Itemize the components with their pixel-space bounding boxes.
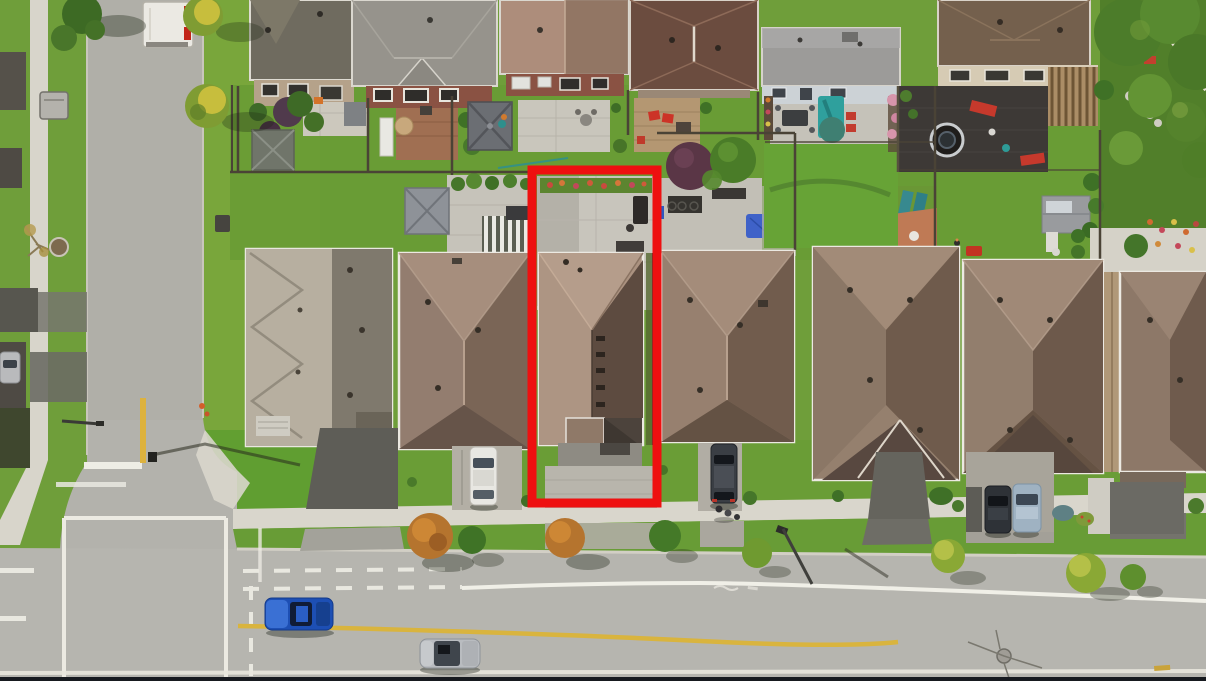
utility-trailer (40, 92, 68, 119)
dark-deck-table (676, 122, 691, 133)
grove-tree-8 (1124, 234, 1148, 258)
subject-roof-vent-3 (596, 368, 605, 373)
far-garden-flower-2 (1159, 227, 1165, 233)
flower-2 (559, 180, 565, 186)
t6-planter-2 (908, 109, 918, 119)
t5-window-2 (772, 88, 786, 98)
white-car-rear-window (473, 490, 494, 499)
grove-highlight-1 (1130, 20, 1150, 40)
red-patio-chair-2 (846, 124, 856, 132)
lawn-shrub-house-2 (407, 477, 417, 487)
grove-highlight-2 (1172, 102, 1188, 118)
pedestrian-2 (725, 510, 732, 517)
red-pot (637, 136, 645, 144)
stop-bar (84, 462, 142, 469)
gazebo-finial (487, 123, 493, 129)
dark-suv-roof (714, 466, 734, 488)
t5-vent-2 (858, 42, 863, 47)
house-7-vent-1 (1147, 317, 1153, 323)
house-2-vent-2 (475, 327, 481, 333)
hedge-bush-2 (466, 173, 482, 189)
subject-roof-vent-1 (596, 336, 605, 341)
corner-house-vent-1 (347, 267, 353, 273)
corner-house-driveway (306, 428, 398, 509)
patio-umbrella (395, 117, 413, 135)
subject-roof-vent-4 (596, 385, 605, 390)
light-blue-car-glass (1016, 494, 1038, 505)
bush-red-flower-1 (1081, 516, 1084, 519)
far-garden-flower-1 (1147, 219, 1153, 225)
t6-vent-2 (1057, 27, 1063, 33)
autumn-tree-2-crown (549, 521, 571, 543)
subject-front-step (600, 443, 630, 455)
yellow-bush-blvd-2-crown (1069, 555, 1091, 577)
top-house-3-skylight-1 (512, 77, 530, 89)
blue-road-car-hood (266, 600, 288, 628)
subject-roof-vent-top-2 (578, 268, 583, 273)
t5-chair-1 (775, 105, 781, 111)
hedge-bush-1 (451, 177, 465, 191)
dark-suv-rear-window (714, 492, 734, 500)
dark-suv-taillight-1 (712, 499, 717, 502)
corner-house-vent-2 (359, 327, 365, 333)
pedestrian-1 (716, 506, 723, 513)
pad-hedge-2 (1071, 245, 1085, 259)
t3-planter (611, 103, 621, 113)
top-house-2-vent (427, 17, 433, 23)
yellow-bush-blvd-1-shadow (950, 571, 986, 585)
top-house-6-roof (938, 0, 1090, 66)
red-lawnmower (966, 246, 982, 256)
small-tree-over-eave (702, 170, 722, 190)
green-tree-blvd-2-shadow (666, 549, 698, 563)
green-tree-blvd-2 (649, 520, 681, 552)
front-bush-3 (743, 491, 757, 505)
left-dark-driveway (0, 288, 38, 332)
house-5-vent-4 (917, 427, 923, 433)
far-garden-flower-8 (1189, 247, 1195, 253)
tree-topleft-3 (85, 20, 105, 40)
left-lamp-head (96, 421, 104, 426)
top-house-5-roof-light (762, 28, 900, 48)
silver-road-car-sunroof (438, 645, 450, 654)
subject-flower-bed (540, 178, 652, 193)
house-5-driveway (868, 452, 930, 519)
far-garden-flower-4 (1183, 229, 1189, 235)
fire-hydrant-base (205, 412, 210, 417)
dark-gray-car-roof (988, 508, 1008, 520)
t5-flower-1 (766, 98, 771, 103)
green-bush-blvd (1120, 564, 1146, 590)
bush-right-of-pergola (1094, 80, 1114, 100)
house-5-vent-2 (907, 297, 913, 303)
front-bush-7 (1188, 498, 1204, 514)
house-2-vent-3 (435, 385, 441, 391)
front-bush-4 (832, 490, 844, 502)
autumn-tree-1-shade (429, 533, 447, 551)
aerial-photo (0, 0, 1206, 681)
flower-8 (642, 182, 647, 187)
top-house-3-patio (518, 100, 610, 152)
pergola-base (482, 216, 528, 258)
h6-yard-bush-2 (1088, 198, 1104, 214)
green-tree-backyard-highlight (718, 142, 738, 162)
white-chair (1052, 248, 1060, 256)
t6-window-2 (985, 70, 1009, 81)
house-4-vent-2 (737, 322, 743, 328)
driveway-apron-3 (700, 521, 744, 547)
hot-tub-water (939, 132, 955, 148)
purple-maple-highlight (674, 148, 694, 168)
t5-chair-2 (809, 105, 815, 111)
sparse-tree-leaves-1 (24, 224, 36, 236)
t3-hedge (613, 139, 627, 153)
pedestrian-group-shadow (714, 517, 734, 523)
top-house-3-roof-shade (565, 0, 628, 74)
bottom-edge-line (0, 671, 1206, 673)
yellow-tree-2-shade (190, 104, 206, 120)
top-house-4-wall (638, 90, 750, 98)
pad-hedge-1 (1071, 229, 1085, 243)
box-truck-cab (146, 42, 188, 47)
house-2-chimney (452, 258, 462, 264)
subject-bbq-grill (633, 196, 648, 224)
gray-sectional-sofa (344, 102, 366, 126)
corner-house-vent-4 (298, 308, 303, 313)
green-tree-blvd-1 (458, 526, 486, 554)
orange-cushion (501, 114, 507, 120)
top-house-1-window-1 (262, 84, 278, 96)
house-6-vent-2 (1047, 317, 1053, 323)
left-edge-dash-2 (0, 616, 26, 621)
green-tree-blvd-3-shadow (759, 566, 791, 578)
hedge-bush-4 (503, 174, 517, 188)
red-chair-1 (648, 110, 660, 121)
top-house-1-vent-2 (317, 11, 323, 17)
blue-road-car-roof (296, 606, 308, 622)
teal-deck-item (1002, 144, 1010, 152)
silver-road-car-rear (462, 641, 478, 666)
house-4-vent-3 (697, 387, 703, 393)
dark-gray-car-glass (988, 496, 1008, 506)
flower-6 (615, 180, 621, 186)
front-bush-5 (929, 487, 953, 505)
shed-skylight-panel (1046, 201, 1072, 213)
t5-flower-3 (766, 122, 771, 127)
corner-house-vent-3 (347, 392, 353, 398)
top-house-5-skylight (842, 32, 858, 42)
t6-planter-1 (900, 90, 912, 102)
left-house-roof-1 (0, 52, 26, 110)
bush-red-flower-2 (1088, 520, 1091, 523)
subject-roof-vent-2 (596, 352, 605, 357)
top-house-2-window-2 (404, 89, 428, 102)
side-street-shade (87, 0, 203, 420)
subject-roof-vent-top-1 (563, 259, 569, 265)
yellow-tree-1-crown (194, 0, 220, 25)
front-bush-6 (952, 500, 964, 512)
corner-house-steps (256, 416, 290, 436)
house-2-vent-1 (425, 299, 431, 305)
pedestrian-3 (734, 514, 740, 520)
t6-vent-1 (997, 19, 1003, 25)
teal-green-tree (819, 117, 845, 143)
grove-tree-4 (1128, 74, 1172, 118)
sparse-tree-leaves-2 (39, 247, 49, 257)
driveway-apron-4 (862, 518, 932, 545)
house-4-chimney (758, 300, 768, 307)
hedge-bush-3 (485, 176, 499, 190)
waste-bin (215, 215, 230, 232)
flower-1 (547, 182, 553, 188)
house-6-vent-1 (997, 297, 1003, 303)
left-driveway-crossing-2 (30, 352, 87, 402)
house-7-driveway (1110, 482, 1184, 534)
driveway-apron-1 (300, 527, 404, 551)
yellow-green-bush (1076, 512, 1094, 526)
house-7-vent-2 (1177, 377, 1183, 383)
subject-roof-vent-5 (596, 402, 605, 407)
house-6-drive-dark-strip (966, 487, 982, 532)
top-house-3-vent (537, 27, 543, 33)
grill-left-neighbor (506, 206, 530, 220)
house-6-vent-4 (1067, 437, 1073, 443)
top-house-1-vent-1 (265, 27, 271, 33)
gardener-vest (956, 239, 959, 242)
red-patio-chair-1 (846, 112, 856, 120)
top-house-3-window-1 (560, 78, 580, 90)
t4-vent-1 (669, 37, 675, 43)
teal-chair (498, 120, 506, 128)
t3-patio-table (580, 114, 592, 126)
house-5-vent-1 (847, 287, 853, 293)
green-bush-blvd-shadow (1137, 586, 1163, 598)
t4-vent-2 (715, 45, 721, 51)
far-garden-flower-3 (1171, 219, 1177, 225)
far-garden-flower-6 (1155, 241, 1161, 247)
corner-lot-tree-1 (287, 91, 313, 117)
bottom-vignette (0, 677, 1206, 681)
top-house-2-window-3 (440, 89, 458, 101)
top-house-3-skylight-2 (538, 77, 551, 87)
red-chair-2 (662, 113, 674, 123)
left-edge-dash-1 (0, 568, 34, 573)
tree-topleft-2 (51, 25, 77, 51)
house-4-vent-1 (687, 297, 693, 303)
crosswalk-line-west (56, 482, 126, 487)
light-blue-car-roof (1016, 507, 1038, 519)
pink-bloom-3 (887, 129, 897, 139)
blue-road-car-rear (316, 602, 330, 626)
white-car-roof (473, 470, 494, 486)
far-garden-flower-5 (1193, 221, 1199, 227)
parked-silver-car-glass (3, 360, 17, 368)
outdoor-sofa (712, 188, 746, 199)
white-car-windshield (473, 458, 494, 468)
t3-chair-1 (575, 109, 581, 115)
house-5-vent-3 (867, 377, 873, 383)
white-deck-item (989, 129, 996, 136)
t6-window-3 (1024, 70, 1044, 81)
t5-vent-1 (798, 38, 803, 43)
aerial-photo-svg (0, 0, 1206, 681)
t5-dining-table (782, 110, 808, 126)
yellow-tree-2-shadow (222, 112, 274, 132)
flower-4 (587, 180, 593, 186)
silver-road-car-front (421, 641, 433, 666)
dark-suv-windshield (714, 455, 734, 464)
green-tree-blvd-1-shadow (472, 553, 504, 567)
subject-side-table (626, 224, 634, 232)
white-patio-table (909, 231, 919, 241)
top-house-2-window-1 (374, 89, 392, 101)
h6-yard-bush-1 (1083, 173, 1101, 191)
yellow-tree-1-shadow (216, 22, 264, 42)
t5-door (800, 88, 812, 100)
t5-flower-2 (766, 110, 771, 115)
tree-mulch-ring (50, 238, 68, 256)
green-tree-blvd-3 (742, 538, 772, 568)
white-storage-box (380, 118, 393, 156)
top-house-3-window-2 (592, 78, 608, 89)
corner-lot-tree-2 (304, 112, 324, 132)
t5-chair-4 (809, 127, 815, 133)
t5-lawn (764, 144, 898, 248)
subject-garage-roof (566, 418, 604, 446)
grove-tree-6 (1109, 131, 1143, 165)
orange-grill (314, 97, 323, 104)
top-house-1-window-3 (320, 86, 342, 100)
far-garden-flower-7 (1175, 243, 1181, 249)
blue-green-bush (1052, 505, 1074, 521)
flower-7 (629, 182, 635, 188)
corner-utility-box (148, 452, 157, 462)
fire-hydrant-top (199, 403, 205, 409)
left-tree-mass (0, 408, 30, 468)
stepping-stone-4 (1154, 119, 1162, 127)
t6-window-1 (950, 70, 970, 81)
bbq-top-house-2 (420, 106, 432, 115)
house-6-vent-3 (1007, 427, 1013, 433)
corner-house-vent-5 (296, 370, 301, 375)
t4-planter (700, 102, 712, 114)
flower-3 (573, 183, 579, 189)
dark-suv-taillight-2 (730, 499, 735, 502)
rear-parking-pad (1090, 228, 1206, 272)
yellow-bush-blvd-1-crown (934, 540, 954, 560)
left-house-roof-2 (0, 148, 22, 188)
t3-chair-2 (591, 109, 597, 115)
flower-5 (601, 183, 607, 189)
